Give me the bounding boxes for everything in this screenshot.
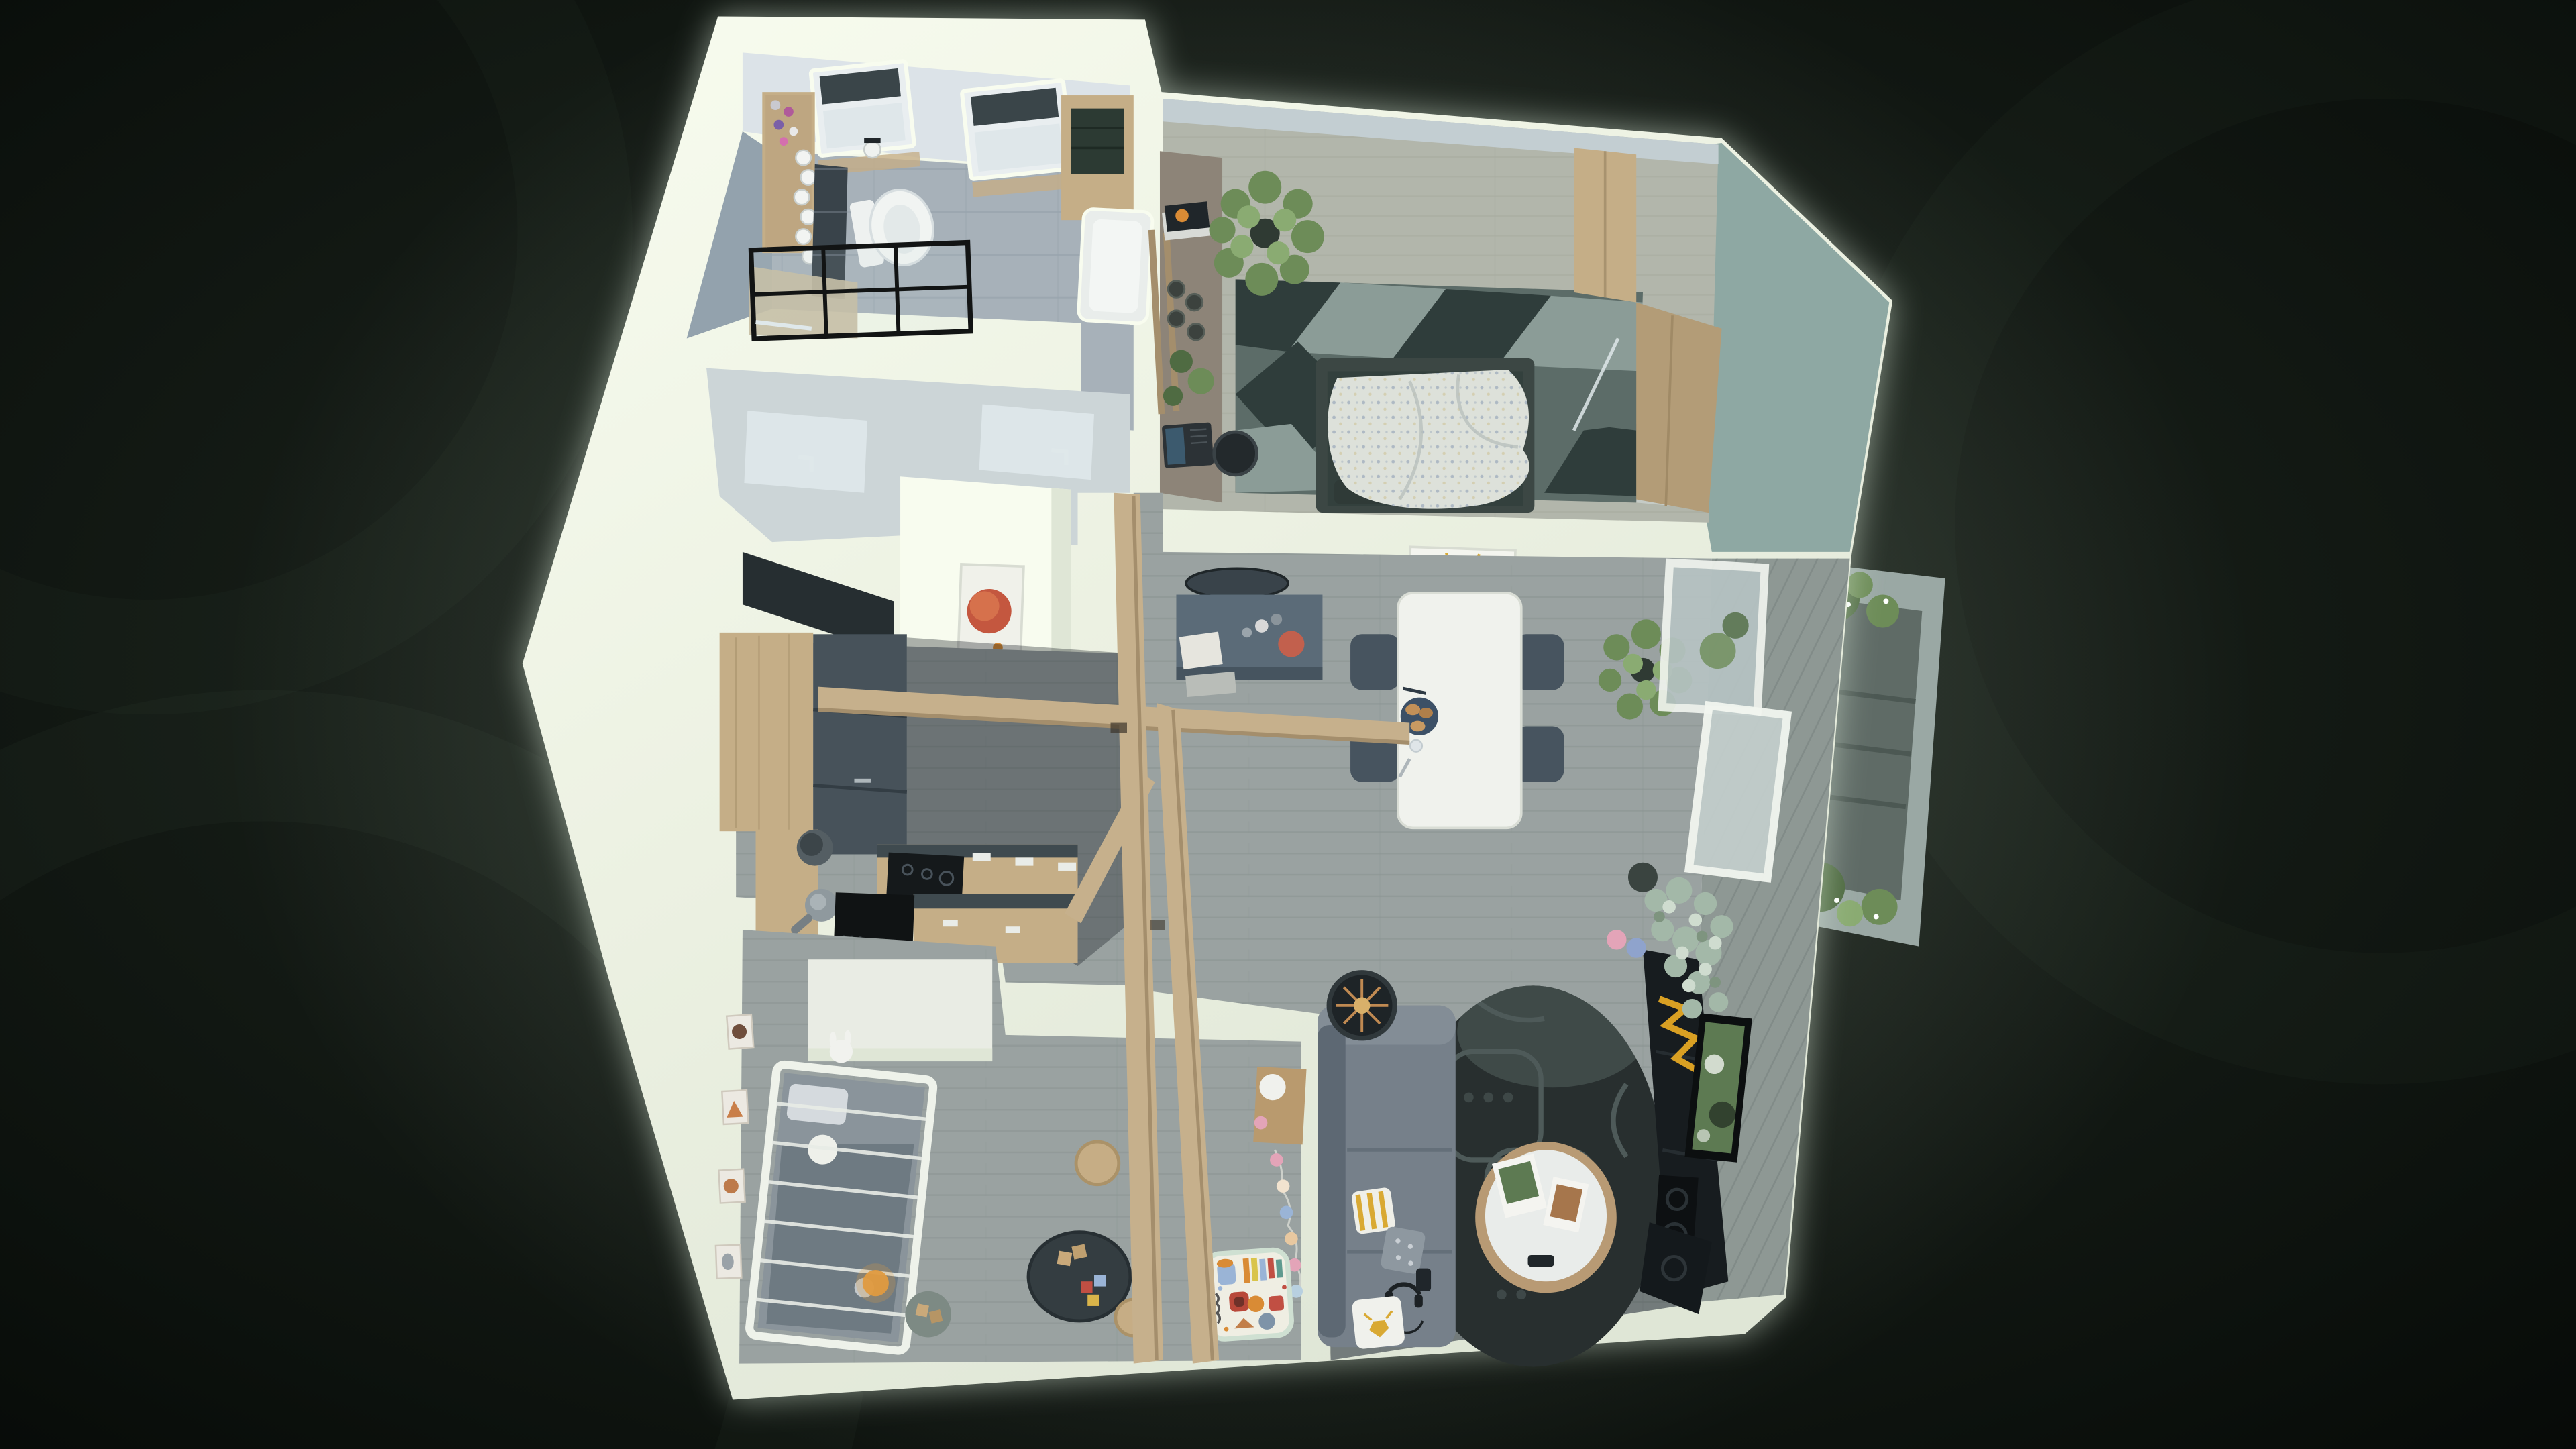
desk-stool (1214, 432, 1257, 475)
patterned-cushion (1380, 1226, 1426, 1275)
remote-control (1528, 1255, 1554, 1267)
open-window-sash (1689, 706, 1788, 878)
room-bedroom (1152, 99, 1722, 523)
skylight-window (962, 80, 1073, 179)
floor-plan-render (0, 0, 2576, 1449)
dark-towels (1071, 109, 1124, 174)
red-bowl (1278, 631, 1304, 657)
glass (1410, 740, 1422, 752)
changing-table (808, 959, 992, 1063)
laptop (1162, 422, 1214, 468)
oval-wall-mirror (1186, 568, 1288, 598)
wood-block (1071, 1244, 1087, 1260)
toy-block (1087, 1295, 1099, 1306)
toy-basket (905, 1291, 951, 1338)
room-living (1318, 930, 1752, 1366)
trivet (973, 853, 991, 861)
toy-block (1081, 1281, 1092, 1293)
play-table (1028, 1232, 1130, 1321)
vase (1255, 619, 1269, 633)
dining-chair (1350, 634, 1399, 690)
side-table (1253, 1067, 1306, 1144)
magazine-stack (1161, 201, 1211, 240)
plush-toy-elephant (1626, 938, 1646, 957)
smartphone (1416, 1269, 1431, 1291)
magazines (1185, 672, 1236, 697)
vase (1271, 614, 1283, 625)
activity-board (1205, 1249, 1293, 1340)
trivet (1058, 863, 1076, 871)
corner-sofa (1318, 1006, 1456, 1350)
bathtub (1078, 209, 1152, 324)
skylight-window (810, 61, 914, 156)
coffee-table (1475, 1142, 1617, 1293)
bathroom-door (744, 411, 867, 492)
oak-tall-cabinet (720, 633, 814, 831)
wooden-stool (1076, 1142, 1119, 1185)
floor-lamp (1329, 973, 1395, 1038)
toy-block (1094, 1275, 1106, 1286)
plush-toy-unicorn (1607, 930, 1626, 949)
deer-cushion (1351, 1295, 1405, 1350)
beam-bracket (1111, 723, 1127, 733)
scene-canvas (0, 0, 2576, 1449)
magazines (1179, 631, 1223, 669)
trivet (1015, 857, 1033, 865)
vase (1242, 628, 1252, 638)
toilet-paper-holder (864, 138, 880, 158)
mixing-bowl (797, 830, 833, 866)
bedroom-door (979, 404, 1094, 480)
wood-vanity (1061, 95, 1134, 220)
wood-block (1057, 1251, 1073, 1267)
dark-cabinet-fronts (813, 634, 907, 854)
double-bed (1316, 358, 1535, 513)
striped-cushion (1351, 1187, 1396, 1234)
beam-bracket (1150, 920, 1165, 930)
dice (1269, 1295, 1285, 1311)
